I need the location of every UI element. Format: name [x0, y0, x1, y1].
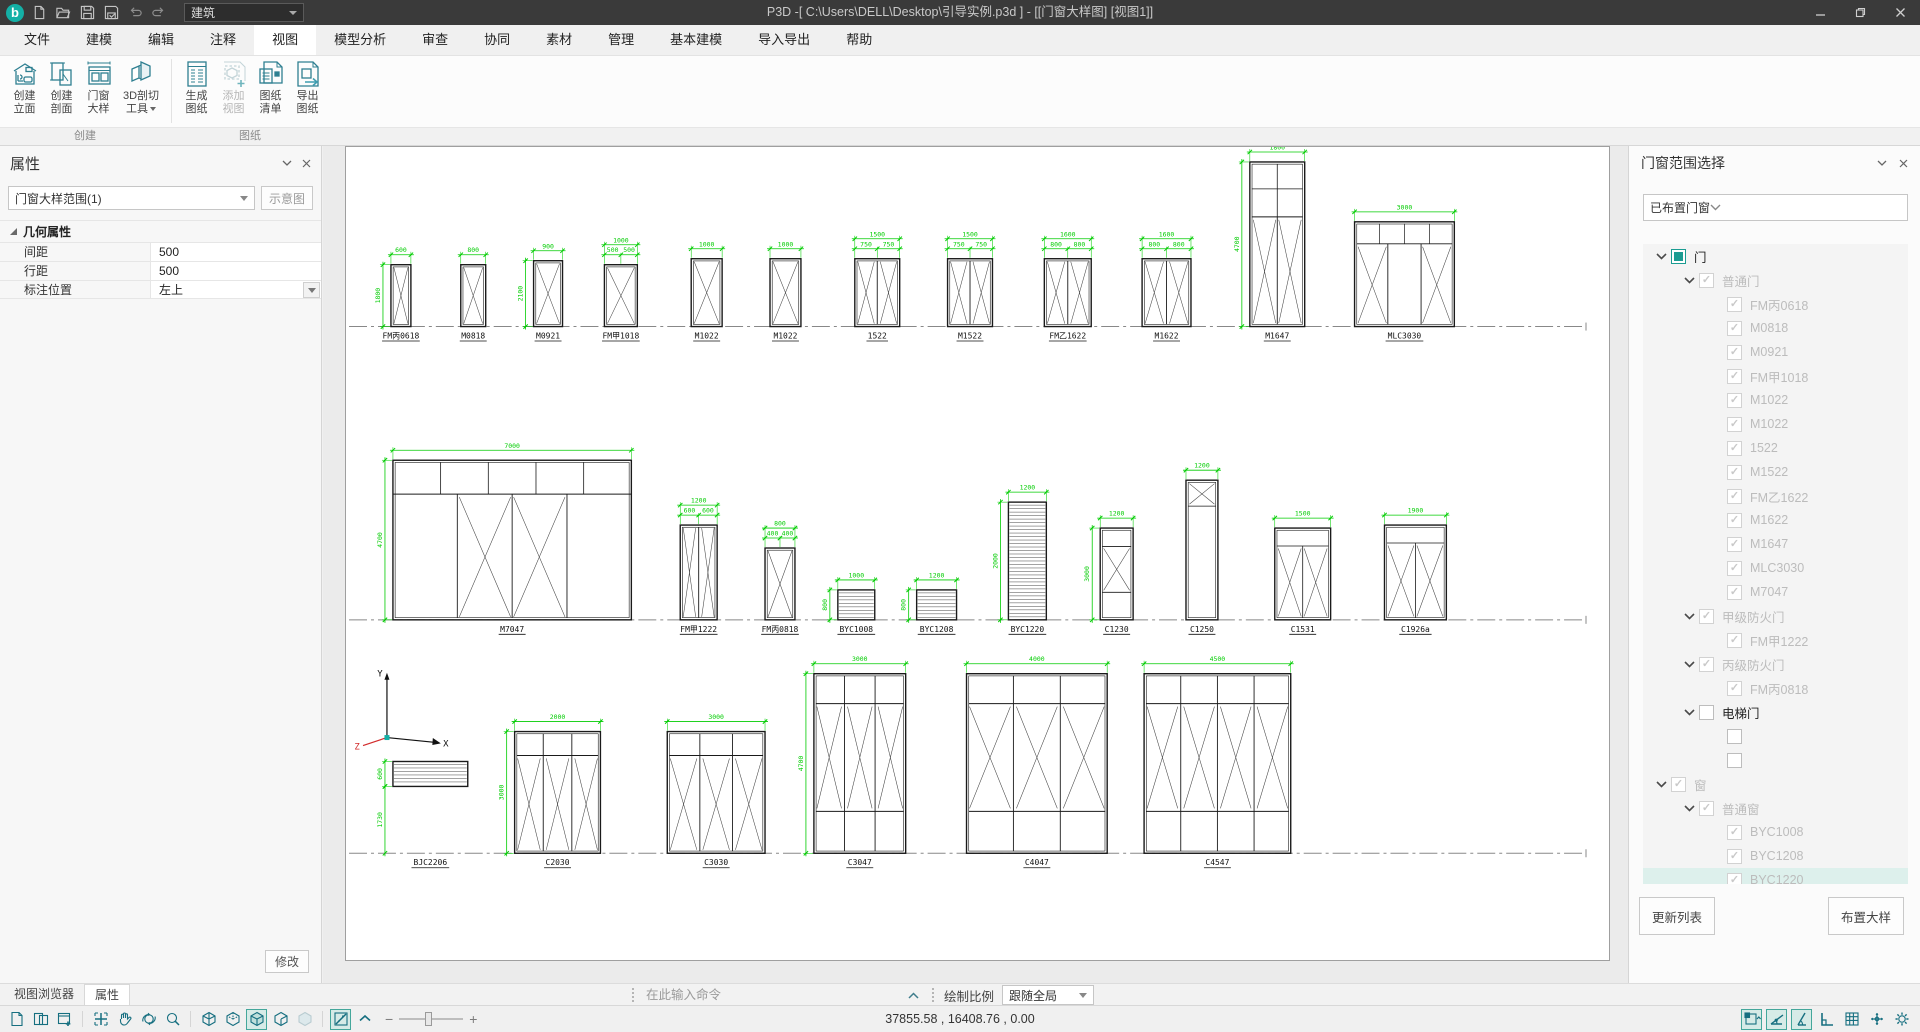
drawing-unit-FM乙1622: 8008001600FM乙1622	[1041, 230, 1094, 341]
save-icon[interactable]	[78, 4, 96, 22]
chevron-down-icon	[240, 196, 248, 201]
svg-text:2000: 2000	[550, 713, 566, 721]
title-bar: b 建筑 P3D -[ C:\Users\DELL\Desktop\引导实例.p…	[0, 0, 1920, 25]
tree-item-FM乙1622[interactable]: ✓FM乙1622	[1643, 484, 1908, 508]
tree-item-BYC1208[interactable]: ✓BYC1208	[1643, 844, 1908, 868]
properties-panel: 属性 门窗大样范围(1) 示意图 几何属性 间距 500 行距 500 标注位置…	[0, 146, 322, 983]
tree-checkbox[interactable]: ✓	[1727, 585, 1742, 600]
window-title: P3D -[ C:\Users\DELL\Desktop\引导实例.p3d ] …	[460, 0, 1460, 25]
tree-item-M1522[interactable]: ✓M1522	[1643, 460, 1908, 484]
tree-checkbox[interactable]: ✓	[1727, 825, 1742, 840]
svg-text:4700: 4700	[376, 532, 384, 548]
drawing-unit-M1622: 8008001600M1622	[1139, 230, 1194, 341]
svg-text:600: 600	[684, 507, 696, 515]
tree-item-普通门[interactable]: ✓普通门	[1643, 268, 1908, 292]
tree-checkbox[interactable]: ✓	[1727, 489, 1742, 504]
svg-text:3000: 3000	[852, 655, 868, 663]
create-section-button[interactable]: 创建 剖面	[43, 59, 80, 116]
tree-checkbox[interactable]	[1671, 249, 1686, 264]
tree-item-电梯门[interactable]: 电梯门	[1643, 700, 1908, 724]
tree-item-窗[interactable]: ✓窗	[1643, 772, 1908, 796]
properties-panel-title: 属性	[10, 153, 40, 174]
tree-checkbox[interactable]: ✓	[1727, 441, 1742, 456]
svg-text:600: 600	[702, 507, 714, 515]
svg-text:3000: 3000	[708, 713, 724, 721]
svg-text:C1250: C1250	[1190, 625, 1214, 634]
drawing-unit-M1022: 1000M1022	[688, 240, 725, 341]
tree-item-label: 窗	[1694, 775, 1707, 794]
svg-text:3000: 3000	[1083, 566, 1091, 582]
view-shaded-icon[interactable]	[246, 1009, 267, 1030]
tree-item-FM甲1018[interactable]: ✓FM甲1018	[1643, 364, 1908, 388]
tree-item-MLC3030[interactable]: ✓MLC3030	[1643, 556, 1908, 580]
svg-text:BYC1220: BYC1220	[1011, 625, 1045, 634]
door-window-detail-icon	[84, 59, 114, 89]
tree-item-label: BYC1208	[1750, 849, 1804, 863]
close-icon[interactable]	[1899, 159, 1908, 168]
zoom-window-icon[interactable]	[162, 1009, 183, 1030]
tree-item-label: FM丙0618	[1750, 295, 1808, 314]
draw-scale-selector[interactable]: 跟随全局	[1002, 985, 1094, 1005]
profile-selector[interactable]: 建筑	[184, 3, 304, 22]
tree-item-FM丙0618[interactable]: ✓FM丙0618	[1643, 292, 1908, 316]
tree-item[interactable]	[1643, 724, 1908, 748]
tree-item-label: FM甲1018	[1750, 367, 1808, 386]
modify-button[interactable]: 修改	[265, 950, 309, 973]
new-file-icon[interactable]	[30, 4, 48, 22]
tree-item[interactable]	[1643, 748, 1908, 772]
menu-bar: 文件 建模 编辑 注释 视图 模型分析 审查 协同 素材 管理 基本建模 导入导…	[0, 25, 1920, 56]
svg-text:600: 600	[376, 768, 384, 780]
settings-gear-icon[interactable]	[1891, 1009, 1912, 1030]
tree-checkbox[interactable]: ✓	[1727, 849, 1742, 864]
svg-text:4700: 4700	[797, 756, 805, 772]
cut-3d-tool-button[interactable]: 3D剖切 工具	[117, 59, 165, 116]
expand-triangle-icon	[10, 228, 17, 235]
property-row-row-spacing: 行距 500	[0, 261, 321, 280]
tree-checkbox[interactable]: ✓	[1727, 297, 1742, 312]
panel-menu-icon[interactable]	[1877, 160, 1887, 167]
view-realistic-icon	[294, 1009, 315, 1030]
tree-item-label: M1647	[1750, 537, 1788, 551]
tree-item-label: M1622	[1750, 513, 1788, 527]
svg-text:750: 750	[883, 240, 895, 248]
svg-text:1500: 1500	[869, 230, 885, 238]
range-tree: 门✓普通门✓FM丙0618✓M0818✓M0921✓FM甲1018✓M1022✓…	[1643, 244, 1908, 884]
property-row-label-position: 标注位置 左上	[0, 280, 321, 299]
place-detail-button[interactable]: 布置大样	[1828, 897, 1904, 935]
svg-text:1522: 1522	[868, 332, 887, 341]
drawing-unit-FM甲1018: 5005001000FM甲1018	[601, 236, 640, 341]
sheet-list-icon	[256, 59, 286, 89]
chevron-down-icon	[1079, 993, 1087, 998]
drawing-unit-1522: 75075015001522	[852, 230, 903, 341]
pan-icon[interactable]	[114, 1009, 135, 1030]
tree-checkbox[interactable]: ✓	[1727, 465, 1742, 480]
element-type-value: 门窗大样范围(1)	[15, 190, 102, 207]
dropdown-button[interactable]	[303, 282, 320, 298]
drawing-unit-C3030: 3000C3030	[664, 713, 768, 868]
svg-text:FM丙0818: FM丙0818	[762, 625, 799, 634]
menu-collaborate[interactable]: 协同	[466, 25, 528, 55]
svg-text:400: 400	[767, 530, 779, 538]
tree-expand-icon[interactable]	[1681, 704, 1697, 720]
svg-text:1800: 1800	[1269, 147, 1285, 151]
tree-item-label: M7047	[1750, 585, 1788, 599]
create-elevation-button[interactable]: 创建 立面	[6, 59, 43, 116]
open-file-icon[interactable]	[54, 4, 72, 22]
ribbon-group-labels: 创建 图纸	[0, 127, 1920, 145]
svg-text:C1230: C1230	[1105, 625, 1129, 634]
tree-expand-icon[interactable]	[1681, 272, 1697, 288]
menu-file[interactable]: 文件	[6, 25, 68, 55]
svg-text:MLC3030: MLC3030	[1388, 332, 1422, 341]
tree-item-label: BYC1220	[1750, 873, 1804, 884]
tree-item-M1647[interactable]: ✓M1647	[1643, 532, 1908, 556]
schematic-button[interactable]: 示意图	[261, 186, 313, 210]
tree-item-label: 门	[1694, 247, 1707, 266]
svg-text:M1647: M1647	[1265, 332, 1289, 341]
drawing-unit-C1531: 1500C1531	[1272, 510, 1334, 635]
add-view-button: 添加 视图	[215, 59, 252, 116]
tree-checkbox[interactable]: ✓	[1699, 609, 1714, 624]
tree-expand-icon[interactable]	[1653, 248, 1669, 264]
ortho-mode-icon[interactable]	[1816, 1009, 1837, 1030]
svg-text:800: 800	[900, 599, 908, 611]
tree-checkbox[interactable]: ✓	[1699, 273, 1714, 288]
menu-edit[interactable]: 编辑	[130, 25, 192, 55]
object-snap-icon[interactable]	[1791, 1009, 1812, 1030]
tree-item-label: M0921	[1750, 345, 1788, 359]
tree-checkbox[interactable]	[1727, 753, 1742, 768]
svg-text:BYC1008: BYC1008	[840, 625, 874, 634]
ucs-axis-triad: YXZ	[354, 670, 449, 753]
range-panel-title: 门窗范围选择	[1641, 153, 1725, 173]
menu-basic-modeling[interactable]: 基本建模	[652, 25, 740, 55]
drawing-unit-BYC1208: 1200800BYC1208	[900, 571, 960, 634]
collapse-command-icon[interactable]	[902, 986, 924, 1004]
svg-text:C3030: C3030	[704, 858, 728, 867]
group-label-create: 创建	[0, 128, 170, 145]
svg-text:FM丙0618: FM丙0618	[383, 332, 420, 341]
svg-text:800: 800	[1050, 240, 1062, 248]
tree-item-label: 电梯门	[1722, 703, 1760, 722]
draw-scale-label: 绘制比例	[944, 986, 994, 1005]
toolbar-separator	[322, 1011, 323, 1027]
svg-text:1000: 1000	[778, 240, 794, 248]
view-hidden-line-icon[interactable]	[222, 1009, 243, 1030]
tree-item-label: 普通窗	[1722, 799, 1760, 818]
tree-item-label: 甲级防火门	[1722, 607, 1785, 626]
svg-text:1500: 1500	[962, 230, 978, 238]
svg-text:C1926a: C1926a	[1401, 625, 1430, 634]
drawing-unit-FM丙0818: 400400800FM丙0818	[761, 520, 799, 635]
svg-text:600: 600	[395, 246, 407, 254]
svg-text:500: 500	[623, 246, 635, 254]
redo-icon[interactable]	[150, 4, 168, 22]
svg-text:M0921: M0921	[536, 332, 560, 341]
tree-item-1522[interactable]: ✓1522	[1643, 436, 1908, 460]
svg-text:500: 500	[607, 246, 619, 254]
tree-item-BYC1220[interactable]: ✓BYC1220	[1643, 868, 1908, 884]
menu-model-analysis[interactable]: 模型分析	[316, 25, 404, 55]
svg-text:1500: 1500	[1295, 510, 1311, 518]
tree-item-label: 普通门	[1722, 271, 1760, 290]
drawing-unit-C4047: 4000C4047	[964, 655, 1111, 867]
svg-text:1200: 1200	[1194, 462, 1210, 470]
svg-text:1800: 1800	[374, 288, 382, 304]
tree-checkbox[interactable]: ✓	[1727, 537, 1742, 552]
tree-item-M1622[interactable]: ✓M1622	[1643, 508, 1908, 532]
svg-text:1000: 1000	[699, 240, 715, 248]
drawing-unit-C4547: 4500C4547	[1141, 655, 1294, 867]
sheet-list-button[interactable]: 图纸 清单	[252, 59, 289, 116]
tree-item-label: M1022	[1750, 393, 1788, 407]
range-filter-value: 已布置门窗	[1650, 199, 1710, 216]
range-filter-selector[interactable]: 已布置门窗	[1643, 194, 1908, 221]
svg-text:X: X	[443, 740, 449, 750]
group-label-sheets: 图纸	[170, 128, 330, 145]
tree-item-M7047[interactable]: ✓M7047	[1643, 580, 1908, 604]
tree-item-BYC1008[interactable]: ✓BYC1008	[1643, 820, 1908, 844]
svg-text:1000: 1000	[613, 236, 629, 244]
svg-text:750: 750	[860, 240, 872, 248]
svg-text:900: 900	[542, 242, 554, 250]
svg-text:1600: 1600	[1159, 230, 1175, 238]
chevron-down-icon	[150, 107, 156, 111]
svg-text:BJC2206: BJC2206	[414, 858, 448, 867]
tree-item-label: FM甲1222	[1750, 631, 1808, 650]
menu-manage[interactable]: 管理	[590, 25, 652, 55]
tree-checkbox[interactable]: ✓	[1727, 345, 1742, 360]
close-button[interactable]	[1880, 0, 1920, 25]
svg-text:1000: 1000	[849, 571, 865, 579]
section-icon	[47, 59, 77, 89]
menu-review[interactable]: 审查	[404, 25, 466, 55]
chevron-down-icon	[1710, 204, 1721, 211]
property-row-spacing: 间距 500	[0, 242, 321, 261]
drawing-paper[interactable]: 6001800FM丙0618800M08189002100M0921500500…	[345, 146, 1610, 961]
drag-handle[interactable]	[632, 988, 636, 1002]
spacing-value[interactable]: 500	[150, 243, 321, 261]
profile-selector-value: 建筑	[191, 4, 215, 21]
menu-modeling[interactable]: 建模	[68, 25, 130, 55]
svg-text:Z: Z	[354, 743, 360, 753]
drawing-unit-BJC2206: 6001730BJC2206	[376, 758, 468, 867]
polar-tracking-icon[interactable]	[1766, 1009, 1787, 1030]
tree-item-label: MLC3030	[1750, 561, 1804, 575]
orbit-icon[interactable]	[138, 1009, 159, 1030]
element-type-selector[interactable]: 门窗大样范围(1)	[8, 186, 255, 210]
tree-checkbox[interactable]: ✓	[1727, 561, 1742, 576]
tree-checkbox[interactable]: ✓	[1699, 657, 1714, 672]
svg-text:7000: 7000	[504, 442, 520, 450]
zoom-extents-icon[interactable]	[90, 1009, 111, 1030]
generate-sheet-icon	[182, 59, 212, 89]
export-sheet-icon	[293, 59, 323, 89]
tree-item-M0921[interactable]: ✓M0921	[1643, 340, 1908, 364]
tree-checkbox[interactable]: ✓	[1699, 801, 1714, 816]
tree-item-普通窗[interactable]: ✓普通窗	[1643, 796, 1908, 820]
generate-sheet-button[interactable]: 生成 图纸	[178, 59, 215, 116]
svg-text:C2030: C2030	[546, 858, 570, 867]
tree-checkbox[interactable]	[1699, 705, 1714, 720]
svg-text:2000: 2000	[991, 553, 999, 569]
tree-expand-icon[interactable]	[1681, 608, 1697, 624]
svg-text:4000: 4000	[1029, 655, 1045, 663]
tree-item-label: 丙级防火门	[1722, 655, 1785, 674]
tree-item-M1022[interactable]: ✓M1022	[1643, 412, 1908, 436]
tree-item-M0818[interactable]: ✓M0818	[1643, 316, 1908, 340]
drag-handle[interactable]	[932, 988, 936, 1002]
drawing-unit-MLC3030: 3000MLC3030	[1352, 203, 1458, 341]
tree-checkbox[interactable]	[1727, 729, 1742, 744]
command-input[interactable]	[644, 986, 894, 1004]
drawing-unit-M7047: 70004700M7047	[376, 442, 634, 635]
export-sheet-button[interactable]: 导出 图纸	[289, 59, 326, 116]
drawing-unit-C3047: 30004700C3047	[797, 655, 909, 867]
tree-item-label: M0818	[1750, 321, 1788, 335]
svg-text:3000: 3000	[498, 785, 506, 801]
menu-import-export[interactable]: 导入导出	[740, 25, 828, 55]
svg-text:800: 800	[1148, 240, 1160, 248]
drawing-unit-FM甲1222: 6006001200FM甲1222	[677, 497, 720, 635]
view-wireframe-icon[interactable]	[198, 1009, 219, 1030]
svg-text:2100: 2100	[517, 286, 525, 302]
menu-help[interactable]: 帮助	[828, 25, 890, 55]
minimize-button[interactable]	[1800, 0, 1840, 25]
collapse-toolbar-icon[interactable]	[354, 1009, 375, 1030]
svg-text:M1522: M1522	[958, 332, 982, 341]
svg-text:400: 400	[782, 530, 794, 538]
elevation-icon	[10, 59, 40, 89]
svg-text:1200: 1200	[691, 497, 707, 505]
svg-text:M0818: M0818	[461, 332, 485, 341]
row-spacing-value[interactable]: 500	[150, 262, 321, 280]
zoom-out-icon[interactable]: −	[385, 1011, 393, 1027]
toolbar-separator	[190, 1011, 191, 1027]
zoom-in-icon[interactable]: +	[469, 1011, 477, 1027]
tree-checkbox[interactable]: ✓	[1727, 873, 1742, 885]
tile-views-icon[interactable]	[30, 1009, 51, 1030]
zoom-slider[interactable]	[399, 1018, 463, 1020]
door-window-detail-button[interactable]: 门窗 大样	[80, 59, 117, 116]
chevron-down-icon	[289, 11, 297, 15]
tree-item-label: M1022	[1750, 417, 1788, 431]
save-as-icon[interactable]	[102, 4, 120, 22]
svg-text:4500: 4500	[1210, 655, 1226, 663]
svg-text:C1531: C1531	[1291, 625, 1315, 634]
tree-item-FM丙0818[interactable]: ✓FM丙0818	[1643, 676, 1908, 700]
svg-text:1200: 1200	[1109, 510, 1125, 518]
menu-annotate[interactable]: 注释	[192, 25, 254, 55]
svg-text:M7047: M7047	[500, 625, 524, 634]
svg-text:BYC1208: BYC1208	[920, 625, 954, 634]
close-icon[interactable]	[302, 159, 311, 168]
tree-checkbox[interactable]: ✓	[1727, 633, 1742, 648]
svg-text:C3047: C3047	[848, 858, 872, 867]
drawing-unit-M1647: 18004700M1647	[1233, 147, 1308, 341]
tree-item-FM甲1222[interactable]: ✓FM甲1222	[1643, 628, 1908, 652]
svg-text:1600: 1600	[1060, 230, 1076, 238]
status-bar: − + 37855.58 , 16408.76 , 0.00	[0, 1005, 1920, 1032]
svg-text:1730: 1730	[376, 812, 384, 828]
drawing-unit-C1230: 12003000C1230	[1083, 510, 1136, 635]
svg-text:4700: 4700	[1233, 236, 1241, 252]
tree-checkbox[interactable]: ✓	[1727, 513, 1742, 528]
cursor-coordinates: 37855.58 , 16408.76 , 0.00	[810, 1012, 1110, 1026]
svg-text:750: 750	[953, 240, 965, 248]
ribbon-separator	[171, 59, 172, 123]
zoom-slider-knob[interactable]	[425, 1012, 432, 1026]
drawing-canvas[interactable]: 6001800FM丙0618800M08189002100M0921500500…	[323, 146, 1628, 983]
tree-item-丙级防火门[interactable]: ✓丙级防火门	[1643, 652, 1908, 676]
drawing-unit-M1022: 1000M1022	[767, 240, 804, 341]
update-list-button[interactable]: 更新列表	[1639, 897, 1715, 935]
svg-text:1200: 1200	[1020, 484, 1036, 492]
svg-text:C4047: C4047	[1025, 858, 1049, 867]
svg-text:1900: 1900	[1408, 507, 1424, 515]
tree-checkbox[interactable]: ✓	[1727, 417, 1742, 432]
tree-checkbox[interactable]: ✓	[1727, 681, 1742, 696]
tree-checkbox[interactable]: ✓	[1727, 393, 1742, 408]
geometry-section-header[interactable]: 几何属性	[0, 220, 321, 242]
tab-view-browser[interactable]: 视图浏览器	[4, 984, 84, 1006]
drawing-unit-BYC1008: 1000800BYC1008	[821, 571, 878, 634]
tree-expand-icon[interactable]	[1681, 800, 1697, 816]
panel-menu-icon[interactable]	[282, 160, 292, 167]
new-view-window-icon[interactable]	[54, 1009, 75, 1030]
tree-checkbox[interactable]: ✓	[1671, 777, 1686, 792]
svg-text:800: 800	[1173, 240, 1185, 248]
svg-text:FM甲1018: FM甲1018	[602, 332, 639, 341]
tree-checkbox[interactable]: ✓	[1727, 369, 1742, 384]
svg-text:M1022: M1022	[773, 332, 797, 341]
restore-button[interactable]	[1840, 0, 1880, 25]
tree-item-门[interactable]: 门	[1643, 244, 1908, 268]
view-conceptual-icon[interactable]	[270, 1009, 291, 1030]
tab-properties[interactable]: 属性	[84, 984, 130, 1006]
menu-material[interactable]: 素材	[528, 25, 590, 55]
tree-checkbox[interactable]: ✓	[1727, 321, 1742, 336]
drawing-svg: 6001800FM丙0618800M08189002100M0921500500…	[346, 147, 1609, 960]
undo-icon[interactable]	[126, 4, 144, 22]
svg-text:800: 800	[774, 520, 786, 528]
svg-text:1200: 1200	[929, 571, 945, 579]
svg-text:Y: Y	[377, 670, 383, 680]
new-drawing-icon[interactable]	[6, 1009, 27, 1030]
svg-text:3000: 3000	[1397, 203, 1413, 211]
annotation-display-icon[interactable]	[330, 1009, 351, 1030]
tree-item-甲级防火门[interactable]: ✓甲级防火门	[1643, 604, 1908, 628]
drawing-unit-M1522: 7507501500M1522	[945, 230, 996, 341]
svg-text:800: 800	[821, 599, 829, 611]
selection-cycling-icon[interactable]	[1741, 1009, 1762, 1030]
draw-scale-value: 跟随全局	[1009, 987, 1057, 1004]
tree-item-label: 1522	[1750, 441, 1778, 455]
gizmo-icon[interactable]	[1866, 1009, 1887, 1030]
tree-expand-icon[interactable]	[1681, 656, 1697, 672]
app-logo-icon: b	[6, 4, 24, 22]
menu-view[interactable]: 视图	[254, 25, 316, 55]
tree-item-M1022[interactable]: ✓M1022	[1643, 388, 1908, 412]
svg-text:FM乙1622: FM乙1622	[1049, 332, 1086, 341]
drawing-unit-C1250: 1200C1250	[1183, 462, 1221, 635]
label-position-value[interactable]: 左上	[150, 281, 321, 298]
tree-expand-icon[interactable]	[1653, 776, 1669, 792]
toolbar-separator	[82, 1011, 83, 1027]
grid-display-icon[interactable]	[1841, 1009, 1862, 1030]
